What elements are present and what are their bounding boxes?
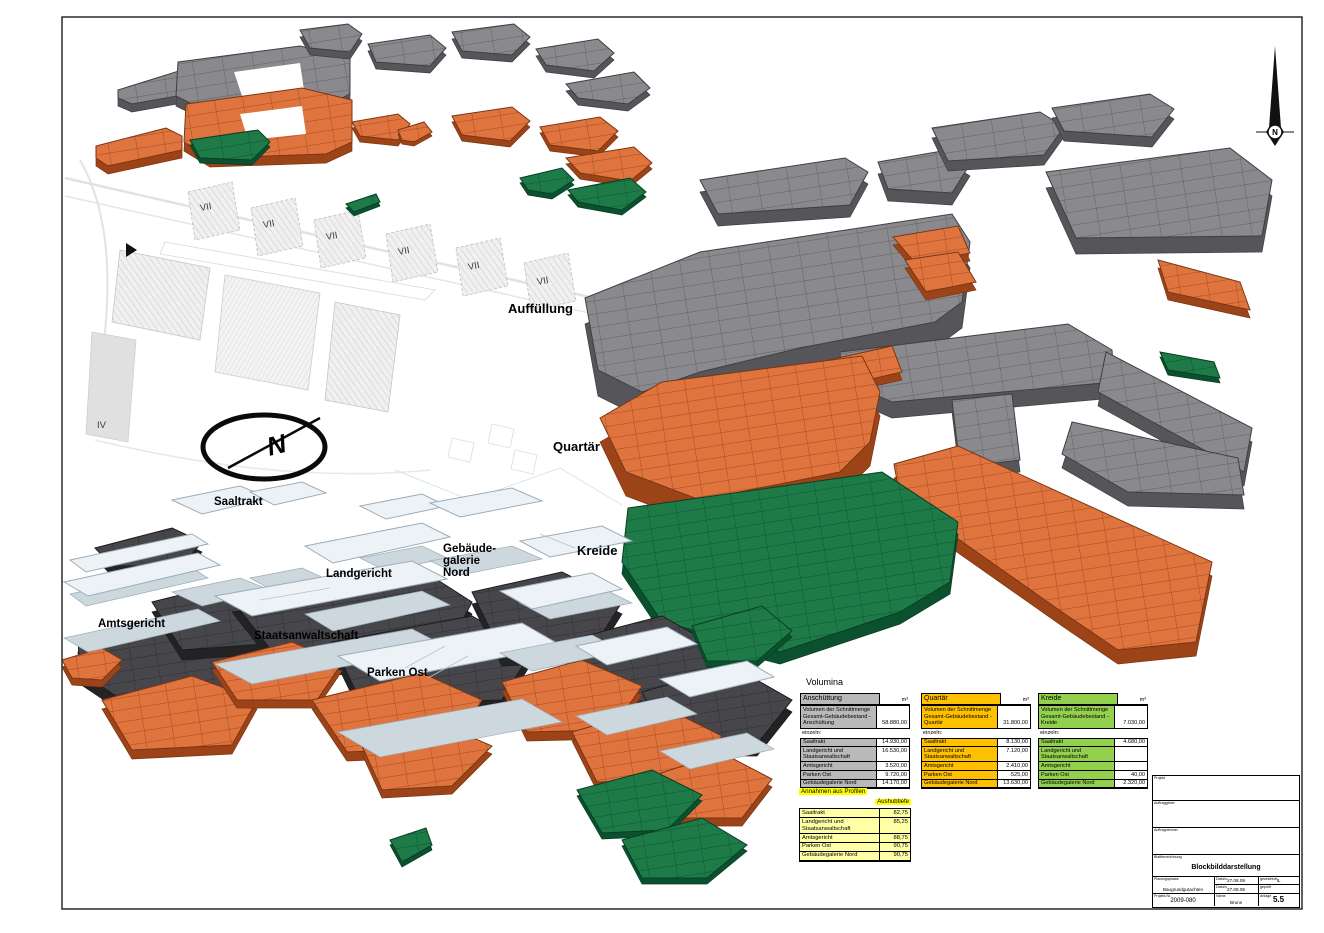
- einzeln-label: einzeln:: [921, 729, 1031, 738]
- titleblock-projektnr-row: Projekt-Nr. 2009-080 Name Bruns Anlage 5…: [1153, 894, 1299, 906]
- table-kreide: Kreide m³ Volumen der Schnittmenge Gesam…: [1038, 693, 1148, 789]
- titleblock-auftragnehmer: Auftragnehmer: [1153, 828, 1299, 855]
- table-row: Parken Ost 90,75: [800, 843, 910, 852]
- table-row: Landgericht und Staatsanwaltschaft: [1039, 747, 1147, 762]
- table-row: Parken Ost 525,00: [922, 771, 1030, 780]
- row-label: Amtsgericht: [800, 834, 880, 842]
- field-label: Name: [1216, 895, 1226, 899]
- name-value: Bruns: [1215, 900, 1257, 905]
- row-label: Amtsgericht: [1039, 762, 1115, 770]
- table-annahmen-aus-profilen: Annahmen aus Profilen Aushubtiefe Saaltr…: [799, 788, 911, 862]
- svg-text:N: N: [264, 428, 291, 462]
- building-label-staatsanwaltschaft: Staatsanwaltschaft: [254, 630, 358, 642]
- row-label: Amtsgericht: [922, 762, 998, 770]
- titleblock-blattbezeichnung: Blattbezeichnung Blockbilddarstellung: [1153, 855, 1299, 877]
- volumina-heading: Volumina: [806, 677, 843, 687]
- row-value: 16.530,00: [877, 747, 909, 761]
- annahmen-col-header: Aushubtiefe: [875, 799, 911, 805]
- table-title: Anschüttung: [800, 693, 880, 705]
- titleblock-auftraggeber: Auftraggeber: [1153, 801, 1299, 828]
- row-value: 82,75: [880, 809, 910, 817]
- sheet-title: Blockbilddarstellung: [1153, 864, 1299, 872]
- table-row: Saaltrakt 4.680,00: [1039, 739, 1147, 748]
- table-title: Quartär: [921, 693, 1001, 705]
- table-title: Kreide: [1038, 693, 1118, 705]
- row-label: Parken Ost: [922, 771, 998, 779]
- field-label: Projekt: [1154, 777, 1165, 781]
- row-label: Gebäudegalerie Nord: [922, 780, 998, 788]
- svg-text:N: N: [1272, 128, 1278, 137]
- row-label: Gebäudegalerie Nord: [801, 780, 877, 788]
- table-row: Amtsgericht 88,75: [800, 834, 910, 843]
- row-value: 3.520,00: [877, 762, 909, 770]
- einzeln-label: einzeln:: [1038, 729, 1148, 738]
- row-value: [1115, 747, 1147, 761]
- row-label: Saaltrakt: [800, 809, 880, 817]
- mini-exploded-model: [96, 24, 652, 216]
- right-exploded-model: [585, 94, 1272, 664]
- building-label-landgericht: Landgericht: [326, 568, 392, 580]
- row-value: 88,75: [880, 834, 910, 842]
- table-row: Saaltrakt 14.930,00: [801, 739, 909, 748]
- unit-label: m³: [1001, 697, 1031, 705]
- titleblock-projekt: Projekt: [1153, 776, 1299, 801]
- row-label: Parken Ost: [1039, 771, 1115, 779]
- total-value: 58.880,00: [877, 706, 909, 728]
- gezeichnet-value: IL: [1259, 878, 1298, 883]
- row-label: Landgericht und Staatsanwaltschaft: [1039, 747, 1115, 761]
- row-label: Saaltrakt: [1039, 739, 1115, 747]
- titleblock-planungsphase-row: Planungsphase Baugrundgutachten Datum 27…: [1153, 877, 1299, 894]
- row-value: 525,00: [998, 771, 1030, 779]
- table-row: Landgericht und Staatsanwaltschaft 16.53…: [801, 747, 909, 762]
- table-row: Landgericht und Staatsanwaltschaft 7.120…: [922, 747, 1030, 762]
- table-quartaer: Quartär m³ Volumen der Schnittmenge Gesa…: [921, 693, 1031, 789]
- zone-label-vii: VII: [397, 245, 410, 258]
- row-value: 13.630,00: [998, 780, 1030, 788]
- einzeln-label: einzeln:: [800, 729, 910, 738]
- table-row: Saaltrakt 8.130,00: [922, 739, 1030, 748]
- row-label: Saaltrakt: [801, 739, 877, 747]
- building-label-parken-ost: Parken Ost: [367, 667, 428, 679]
- field-label: Planungsphase: [1154, 878, 1179, 882]
- table-row: Amtsgericht: [1039, 762, 1147, 771]
- field-label: geprüft: [1260, 886, 1271, 890]
- zone-label-vii: VII: [199, 201, 212, 214]
- datum2-value: 27.08.09: [1215, 887, 1257, 892]
- projekt-nr-value: 2009-080: [1153, 898, 1213, 905]
- row-label: Amtsgericht: [801, 762, 877, 770]
- row-value: 90,75: [880, 843, 910, 851]
- row-value: 85,25: [880, 818, 910, 833]
- row-value: 8.130,00: [998, 739, 1030, 747]
- north-arrow-icon: N: [1256, 46, 1294, 146]
- row-value: [1115, 762, 1147, 770]
- title-block: Projekt Auftraggeber Auftragnehmer Blatt…: [1152, 775, 1300, 908]
- table-row: Parken Ost 9.720,00: [801, 771, 909, 780]
- strata-label-auffuellung: Auffüllung: [508, 301, 573, 316]
- row-value: 40,00: [1115, 771, 1147, 779]
- field-label: Auftraggeber: [1154, 802, 1175, 806]
- row-label: Saaltrakt: [922, 739, 998, 747]
- total-value: 31.800,00: [998, 706, 1030, 728]
- field-label: Auftragnehmer: [1154, 829, 1178, 833]
- building-label-saaltrakt: Saaltrakt: [214, 496, 263, 508]
- total-label: Volumen der Schnittmenge Gesamt-Gebäudeb…: [922, 706, 998, 728]
- annahmen-title: Annahmen aus Profilen: [799, 788, 867, 795]
- table-row: Saaltrakt 82,75: [800, 809, 910, 818]
- zone-label-vii: VII: [262, 218, 275, 231]
- row-value: 2.410,00: [998, 762, 1030, 770]
- row-label: Gebäudegalerie Nord: [800, 852, 880, 860]
- row-label: Parken Ost: [800, 843, 880, 851]
- row-value: 4.680,00: [1115, 739, 1147, 747]
- zone-label-iv: IV: [97, 420, 106, 431]
- total-label: Volumen der Schnittmenge Gesamt-Gebäudeb…: [801, 706, 877, 728]
- row-value: 14.930,00: [877, 739, 909, 747]
- table-row: Gebäudegalerie Nord 13.630,00: [922, 780, 1030, 789]
- datum1-value: 27.08.09: [1215, 878, 1257, 883]
- row-value: 2.320,00: [1115, 780, 1147, 788]
- anlage-value: 5.5: [1259, 896, 1298, 905]
- total-value: 7.030,00: [1115, 706, 1147, 728]
- table-row: Landgericht und Staatsanwaltschaft 85,25: [800, 818, 910, 834]
- field-label: Blattbezeichnung: [1154, 856, 1182, 860]
- table-anschuettung: Anschüttung m³ Volumen der Schnittmenge …: [800, 693, 910, 789]
- total-label: Volumen der Schnittmenge Gesamt-Gebäudeb…: [1039, 706, 1115, 728]
- unit-label: m³: [880, 697, 910, 705]
- block-model-scene: N N: [0, 0, 1324, 933]
- row-value: 14.170,00: [877, 780, 909, 788]
- table-row: Gebäudegalerie Nord 90,75: [800, 852, 910, 861]
- row-label: Parken Ost: [801, 771, 877, 779]
- row-label: Landgericht und Staatsanwaltschaft: [800, 818, 880, 833]
- building-label-gebaeudegalerie-nord: Gebäude- galerie Nord: [443, 543, 496, 579]
- drawing-sheet: N N VII VII VII VII VII VII IV Auffüllun…: [0, 0, 1324, 933]
- table-row: Amtsgericht 3.520,00: [801, 762, 909, 771]
- row-value: 90,75: [880, 852, 910, 860]
- zone-label-vii: VII: [325, 230, 338, 243]
- row-label: Landgericht und Staatsanwaltschaft: [922, 747, 998, 761]
- zone-label-vii: VII: [536, 275, 549, 288]
- row-value: 9.720,00: [877, 771, 909, 779]
- row-value: 7.120,00: [998, 747, 1030, 761]
- planungsphase-value: Baugrundgutachten: [1153, 887, 1213, 892]
- strata-label-quartaer: Quartär: [553, 439, 600, 454]
- strata-label-kreide: Kreide: [577, 543, 617, 558]
- building-label-amtsgericht: Amtsgericht: [98, 618, 165, 630]
- table-row: Gebäudegalerie Nord 14.170,00: [801, 780, 909, 789]
- row-label: Gebäudegalerie Nord: [1039, 780, 1115, 788]
- unit-label: m³: [1118, 697, 1148, 705]
- zone-label-vii: VII: [467, 260, 480, 273]
- table-row: Parken Ost 40,00: [1039, 771, 1147, 780]
- table-row: Gebäudegalerie Nord 2.320,00: [1039, 780, 1147, 789]
- row-label: Landgericht und Staatsanwaltschaft: [801, 747, 877, 761]
- site-plan: [65, 160, 622, 505]
- table-row: Amtsgericht 2.410,00: [922, 762, 1030, 771]
